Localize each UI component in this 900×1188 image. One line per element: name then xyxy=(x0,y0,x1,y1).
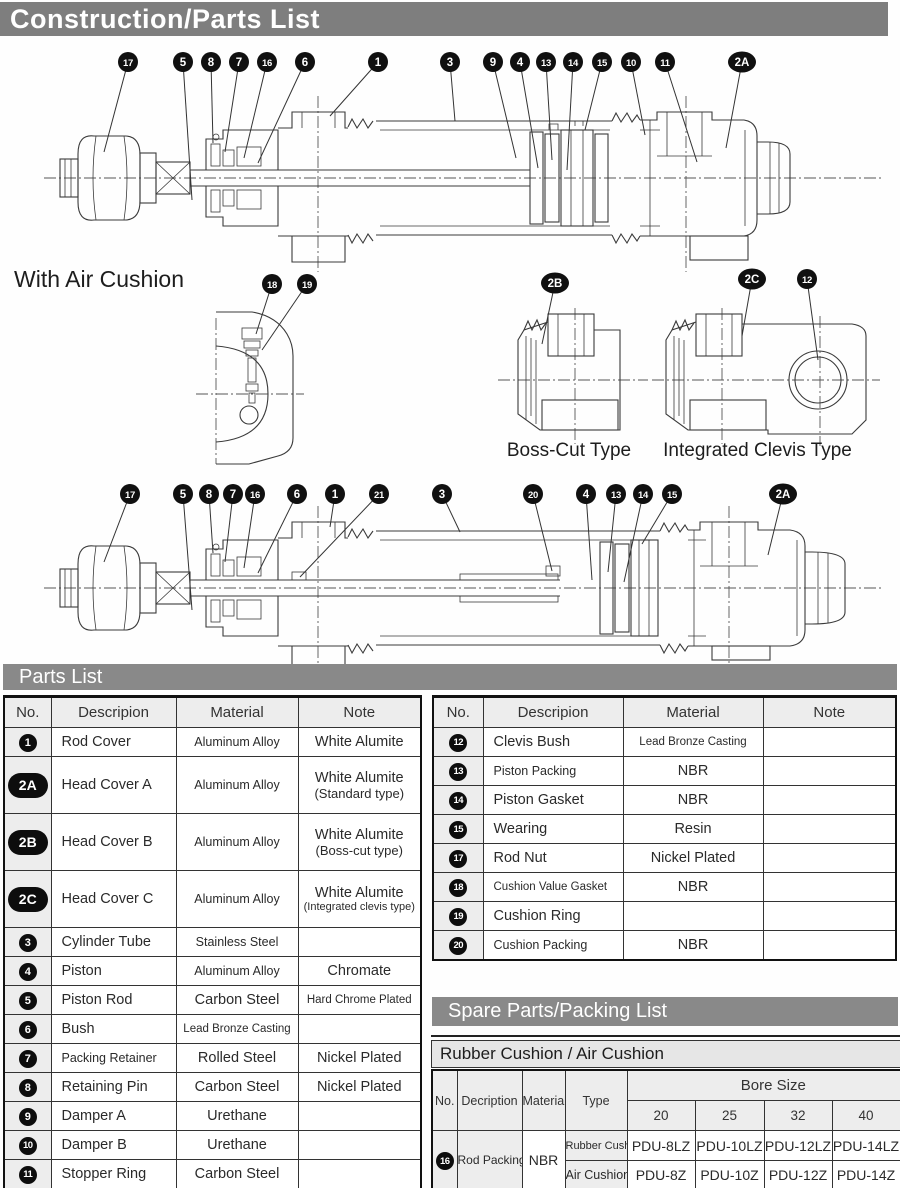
part-number-badge: 13 xyxy=(449,763,467,781)
callout-leader-2A xyxy=(726,62,742,148)
part-material: Urethane xyxy=(176,1102,298,1131)
callout-label-18: 18 xyxy=(267,280,277,291)
spare-header-row: No.DecriptionMaterialTypeBore Size xyxy=(432,1070,900,1101)
part-no-cell: 2C xyxy=(4,871,51,928)
part-description: Head Cover C xyxy=(51,871,176,928)
part-description: Wearing xyxy=(483,815,623,844)
part-material: Stainless Steel xyxy=(176,928,298,957)
column-header: Descripion xyxy=(51,697,176,728)
part-material: NBR xyxy=(623,757,763,786)
part-number-badge: 19 xyxy=(449,908,467,926)
callout-label-2B: 2B xyxy=(548,278,563,290)
part-no-cell: 12 xyxy=(433,728,483,757)
part-material: Aluminum Alloy xyxy=(176,871,298,928)
part-material: Carbon Steel xyxy=(176,1160,298,1188)
table-row: 4PistonAluminum AlloyChromate xyxy=(4,957,421,986)
table-row: 2CHead Cover CAluminum AlloyWhite Alumit… xyxy=(4,871,421,928)
callout-label-11: 11 xyxy=(660,58,670,69)
column-header: Type xyxy=(565,1070,627,1131)
part-note-line2: (Standard type) xyxy=(299,786,421,801)
table-row: 17Rod NutNickel Plated xyxy=(433,844,896,873)
column-header: Decription xyxy=(457,1070,522,1131)
spare-parts-title: Spare Parts/Packing List xyxy=(448,1000,667,1023)
column-header: No. xyxy=(433,697,483,728)
header-row: No.DescripionMaterialNote xyxy=(433,697,896,728)
part-note xyxy=(763,728,896,757)
bore-size-header: Bore Size xyxy=(627,1070,900,1101)
parts-table-left-body: 1Rod CoverAluminum AlloyWhite Alumite2AH… xyxy=(4,728,421,1188)
callout-leader-10 xyxy=(631,62,645,135)
part-no-cell: 16 xyxy=(432,1131,457,1188)
part-no-cell: 20 xyxy=(433,931,483,960)
callout-leader-20 xyxy=(533,494,552,571)
part-no-cell: 9 xyxy=(4,1102,51,1131)
part-material: Nickel Plated xyxy=(623,844,763,873)
part-number-badge: 2B xyxy=(8,830,48,855)
part-material: Aluminum Alloy xyxy=(176,957,298,986)
bore-size-value: 32 xyxy=(764,1101,832,1131)
table-row: 18Cushion Value GasketNBR xyxy=(433,873,896,902)
callout-label-2C: 2C xyxy=(745,274,760,286)
callout-label-6: 6 xyxy=(294,489,300,501)
callout-label-1: 1 xyxy=(375,57,382,69)
part-no-cell: 5 xyxy=(4,986,51,1015)
callout-label-19: 19 xyxy=(302,280,312,291)
part-number-badge: 11 xyxy=(19,1166,37,1184)
part-no-cell: 8 xyxy=(4,1073,51,1102)
integrated-clevis-type-label: Integrated Clevis Type xyxy=(650,440,865,462)
part-description: Piston Packing xyxy=(483,757,623,786)
callout-label-5: 5 xyxy=(180,57,187,69)
part-description: Rod Packing xyxy=(457,1131,522,1188)
part-description: Rod Cover xyxy=(51,728,176,757)
callouts-cushion-detail: 1819 xyxy=(256,274,317,350)
part-note xyxy=(298,1015,421,1044)
table-row: 13Piston PackingNBR xyxy=(433,757,896,786)
part-material: Aluminum Alloy xyxy=(176,814,298,871)
callout-label-8: 8 xyxy=(208,57,215,69)
part-number-badge: 2C xyxy=(8,887,48,912)
part-number-badge: 15 xyxy=(449,821,467,839)
part-number-badge: 18 xyxy=(449,879,467,897)
callout-leader-5 xyxy=(183,494,192,610)
callout-label-3: 3 xyxy=(439,489,445,501)
table-row: 10Damper BUrethane xyxy=(4,1131,421,1160)
part-description: Stopper Ring xyxy=(51,1160,176,1188)
table-row: 5Piston RodCarbon SteelHard Chrome Plate… xyxy=(4,986,421,1015)
callout-label-15: 15 xyxy=(667,490,678,501)
part-material: Rolled Steel xyxy=(176,1044,298,1073)
callout-label-1: 1 xyxy=(332,489,339,501)
table-row: 2AHead Cover AAluminum AlloyWhite Alumit… xyxy=(4,757,421,814)
part-number-badge: 1 xyxy=(19,734,37,752)
spare-parts-table: No.DecriptionMaterialTypeBore Size202532… xyxy=(431,1069,900,1188)
part-description: Cushion Packing xyxy=(483,931,623,960)
table-row: 2BHead Cover BAluminum AlloyWhite Alumit… xyxy=(4,814,421,871)
model-number-cell: PDU-8LZ xyxy=(627,1131,695,1161)
part-description: Clevis Bush xyxy=(483,728,623,757)
table-row: 19Cushion Ring xyxy=(433,902,896,931)
part-number-badge: 8 xyxy=(19,1079,37,1097)
table-row: 9Damper AUrethane xyxy=(4,1102,421,1131)
with-air-cushion-label: With Air Cushion xyxy=(14,266,184,293)
part-description: Rod Nut xyxy=(483,844,623,873)
callout-label-12: 12 xyxy=(802,275,812,286)
part-no-cell: 4 xyxy=(4,957,51,986)
callouts-air-cushion: 1758716612132041314152A xyxy=(104,484,797,611)
model-number-cell: PDU-10LZ xyxy=(695,1131,764,1161)
callout-leader-9 xyxy=(493,62,516,158)
model-number-cell: PDU-10Z xyxy=(695,1161,764,1188)
callout-label-16: 16 xyxy=(250,490,260,501)
part-description: Piston Gasket xyxy=(483,786,623,815)
part-material: Lead Bronze Casting xyxy=(176,1015,298,1044)
part-note: White Alumite(Boss-cut type) xyxy=(298,814,421,871)
part-description: Cushion Value Gasket xyxy=(483,873,623,902)
part-note-line: White Alumite xyxy=(299,734,421,750)
model-number-cell: PDU-14Z xyxy=(832,1161,900,1188)
part-no-cell: 2B xyxy=(4,814,51,871)
parts-list-title: Parts List xyxy=(19,666,102,689)
part-no-cell: 2A xyxy=(4,757,51,814)
model-number-cell: PDU-12LZ xyxy=(764,1131,832,1161)
part-material: Carbon Steel xyxy=(176,986,298,1015)
part-note xyxy=(298,928,421,957)
callout-label-2A: 2A xyxy=(735,57,750,69)
callout-leader-5 xyxy=(183,62,192,200)
part-note xyxy=(763,786,896,815)
part-description: Retaining Pin xyxy=(51,1073,176,1102)
callout-label-2A: 2A xyxy=(776,489,791,501)
part-number-badge: 10 xyxy=(19,1137,37,1155)
cushion-valve-detail xyxy=(196,312,304,464)
part-no-cell: 10 xyxy=(4,1131,51,1160)
part-note xyxy=(298,1102,421,1131)
part-note-line: Nickel Plated xyxy=(299,1050,421,1066)
part-material: Urethane xyxy=(176,1131,298,1160)
spare-table-body: 16Rod PackingNBRRubber CushionPDU-8LZPDU… xyxy=(432,1131,900,1188)
callout-label-14: 14 xyxy=(568,58,579,69)
part-note-line: Nickel Plated xyxy=(299,1079,421,1095)
column-header: Material xyxy=(176,697,298,728)
spare-table-head: No.DecriptionMaterialTypeBore Size202532… xyxy=(432,1070,900,1131)
callout-label-13: 13 xyxy=(611,490,621,501)
part-note: Nickel Plated xyxy=(298,1044,421,1073)
callout-label-17: 17 xyxy=(125,490,135,501)
bore-size-value: 25 xyxy=(695,1101,764,1131)
part-no-cell: 11 xyxy=(4,1160,51,1188)
callout-leader-7 xyxy=(225,494,233,562)
part-material xyxy=(623,902,763,931)
callout-label-17: 17 xyxy=(123,58,133,69)
callout-label-3: 3 xyxy=(447,57,453,69)
construction-diagram: 17587166139413141510112A 1819 xyxy=(0,0,900,672)
part-material: Lead Bronze Casting xyxy=(623,728,763,757)
part-description: Cylinder Tube xyxy=(51,928,176,957)
part-number-badge: 14 xyxy=(449,792,467,810)
part-material: Carbon Steel xyxy=(176,1073,298,1102)
model-number-cell: PDU-14LZ xyxy=(832,1131,900,1161)
callout-leader-15 xyxy=(585,62,602,130)
part-number-badge: 2A xyxy=(8,773,48,798)
callout-leader-13 xyxy=(546,62,552,160)
table-row: 11Stopper RingCarbon Steel xyxy=(4,1160,421,1188)
part-description: Damper B xyxy=(51,1131,176,1160)
model-number-cell: PDU-8Z xyxy=(627,1161,695,1188)
callout-leader-14 xyxy=(567,62,573,170)
callout-label-6: 6 xyxy=(302,57,308,69)
callout-leader-16 xyxy=(244,62,267,158)
bore-size-value: 20 xyxy=(627,1101,695,1131)
part-no-cell: 6 xyxy=(4,1015,51,1044)
part-no-cell: 17 xyxy=(433,844,483,873)
part-description: Head Cover A xyxy=(51,757,176,814)
cylinder-section-air-cushion xyxy=(44,506,884,672)
part-note: Chromate xyxy=(298,957,421,986)
callout-leader-7 xyxy=(225,62,239,152)
part-description: Piston xyxy=(51,957,176,986)
part-no-cell: 15 xyxy=(433,815,483,844)
callout-label-5: 5 xyxy=(180,489,187,501)
part-note-line: Chromate xyxy=(299,963,421,979)
callout-label-7: 7 xyxy=(230,489,236,501)
part-note-line2: (Boss-cut type) xyxy=(299,843,421,858)
table-row: 20Cushion PackingNBR xyxy=(433,931,896,960)
part-material: Aluminum Alloy xyxy=(176,757,298,814)
callout-label-16: 16 xyxy=(262,58,272,69)
callout-leader-8 xyxy=(211,62,213,143)
column-header: Descripion xyxy=(483,697,623,728)
part-description: Head Cover B xyxy=(51,814,176,871)
part-number-badge: 12 xyxy=(449,734,467,752)
part-number-badge: 7 xyxy=(19,1050,37,1068)
cushion-type-label: Rubber Cushion xyxy=(565,1131,627,1161)
spare-parts-section-bar: Spare Parts/Packing List xyxy=(432,997,898,1026)
column-header: Material xyxy=(623,697,763,728)
table-row: 6BushLead Bronze Casting xyxy=(4,1015,421,1044)
part-material: Resin xyxy=(623,815,763,844)
part-no-cell: 1 xyxy=(4,728,51,757)
model-number-cell: PDU-12Z xyxy=(764,1161,832,1188)
part-material: NBR xyxy=(623,931,763,960)
bore-size-value: 40 xyxy=(832,1101,900,1131)
part-material: NBR xyxy=(623,786,763,815)
part-note xyxy=(298,1131,421,1160)
callout-label-15: 15 xyxy=(597,58,608,69)
part-number-badge: 16 xyxy=(436,1152,454,1170)
callout-leader-14 xyxy=(624,494,643,582)
part-description: Cushion Ring xyxy=(483,902,623,931)
spare-parts-divider xyxy=(431,1035,900,1037)
part-note xyxy=(763,931,896,960)
part-no-cell: 19 xyxy=(433,902,483,931)
callout-label-8: 8 xyxy=(206,489,213,501)
part-description: Bush xyxy=(51,1015,176,1044)
part-material: NBR xyxy=(623,873,763,902)
header-row: No.DescripionMaterialNote xyxy=(4,697,421,728)
spare-parts-subtitle: Rubber Cushion / Air Cushion xyxy=(431,1040,900,1068)
callout-label-13: 13 xyxy=(541,58,551,69)
part-no-cell: 7 xyxy=(4,1044,51,1073)
part-number-badge: 20 xyxy=(449,937,467,955)
table-row: 15WearingResin xyxy=(433,815,896,844)
part-note: White Alumite(Standard type) xyxy=(298,757,421,814)
part-description: Packing Retainer xyxy=(51,1044,176,1073)
part-note: White Alumite xyxy=(298,728,421,757)
callouts-clevis: 2C12 xyxy=(738,269,818,361)
cylinder-section-standard xyxy=(44,96,884,272)
column-header: No. xyxy=(4,697,51,728)
catalog-page: Construction/Parts List xyxy=(0,0,900,1188)
boss-cut-type-label: Boss-Cut Type xyxy=(494,440,644,462)
part-number-badge: 5 xyxy=(19,992,37,1010)
parts-list-section-bar: Parts List xyxy=(3,664,897,690)
table-row: 8Retaining PinCarbon SteelNickel Plated xyxy=(4,1073,421,1102)
callout-leader-12 xyxy=(807,279,818,360)
part-material: Aluminum Alloy xyxy=(176,728,298,757)
integrated-clevis-head-cover xyxy=(652,308,880,446)
cushion-type-label: Air Cushion xyxy=(565,1161,627,1188)
parts-table-left-head: No.DescripionMaterialNote xyxy=(4,697,421,728)
callout-label-4: 4 xyxy=(583,489,590,501)
part-note xyxy=(763,873,896,902)
callout-label-20: 20 xyxy=(528,490,538,501)
part-no-cell: 13 xyxy=(433,757,483,786)
part-number-badge: 17 xyxy=(449,850,467,868)
parts-table-right-body: 12Clevis BushLead Bronze Casting13Piston… xyxy=(433,728,896,960)
table-row: 3Cylinder TubeStainless Steel xyxy=(4,928,421,957)
part-note-line: White Alumite xyxy=(299,770,421,786)
boss-cut-head-cover xyxy=(498,308,648,444)
part-note xyxy=(763,844,896,873)
part-no-cell: 18 xyxy=(433,873,483,902)
part-number-badge: 6 xyxy=(19,1021,37,1039)
part-note xyxy=(298,1160,421,1188)
table-row: 14Piston GasketNBR xyxy=(433,786,896,815)
callout-leader-1 xyxy=(330,62,378,116)
part-number-badge: 9 xyxy=(19,1108,37,1126)
part-note: White Alumite(Integrated clevis type) xyxy=(298,871,421,928)
part-number-badge: 4 xyxy=(19,963,37,981)
callout-leader-4 xyxy=(586,494,592,580)
part-note xyxy=(763,902,896,931)
callout-label-7: 7 xyxy=(236,57,242,69)
part-description: Damper A xyxy=(51,1102,176,1131)
callout-leader-17 xyxy=(104,494,130,562)
callout-leader-4 xyxy=(520,62,538,168)
part-note-line: Hard Chrome Plated xyxy=(299,994,421,1006)
callout-label-21: 21 xyxy=(374,490,385,501)
column-header: No. xyxy=(432,1070,457,1131)
callouts-boss-cut: 2B xyxy=(541,273,569,345)
part-note-line2: (Integrated clevis type) xyxy=(299,901,421,913)
part-note: Nickel Plated xyxy=(298,1073,421,1102)
column-header: Note xyxy=(298,697,421,728)
part-note: Hard Chrome Plated xyxy=(298,986,421,1015)
column-header: Note xyxy=(763,697,896,728)
part-no-cell: 14 xyxy=(433,786,483,815)
parts-table-right: No.DescripionMaterialNote 12Clevis BushL… xyxy=(432,695,897,961)
column-header: Material xyxy=(522,1070,565,1131)
part-number-badge: 3 xyxy=(19,934,37,952)
parts-table-right-head: No.DescripionMaterialNote xyxy=(433,697,896,728)
part-material: NBR xyxy=(522,1131,565,1188)
table-row: 12Clevis BushLead Bronze Casting xyxy=(433,728,896,757)
parts-table-left: No.DescripionMaterialNote 1Rod CoverAlum… xyxy=(3,695,422,1188)
part-note-line: White Alumite xyxy=(299,827,421,843)
part-note xyxy=(763,757,896,786)
callout-label-14: 14 xyxy=(638,490,649,501)
callout-label-9: 9 xyxy=(490,57,496,69)
spare-data-row: 16Rod PackingNBRRubber CushionPDU-8LZPDU… xyxy=(432,1131,900,1161)
part-note-line: White Alumite xyxy=(299,885,421,901)
part-note xyxy=(763,815,896,844)
table-row: 1Rod CoverAluminum AlloyWhite Alumite xyxy=(4,728,421,757)
part-no-cell: 3 xyxy=(4,928,51,957)
callout-label-4: 4 xyxy=(517,57,524,69)
part-description: Piston Rod xyxy=(51,986,176,1015)
table-row: 7Packing RetainerRolled SteelNickel Plat… xyxy=(4,1044,421,1073)
callout-label-10: 10 xyxy=(626,58,636,69)
